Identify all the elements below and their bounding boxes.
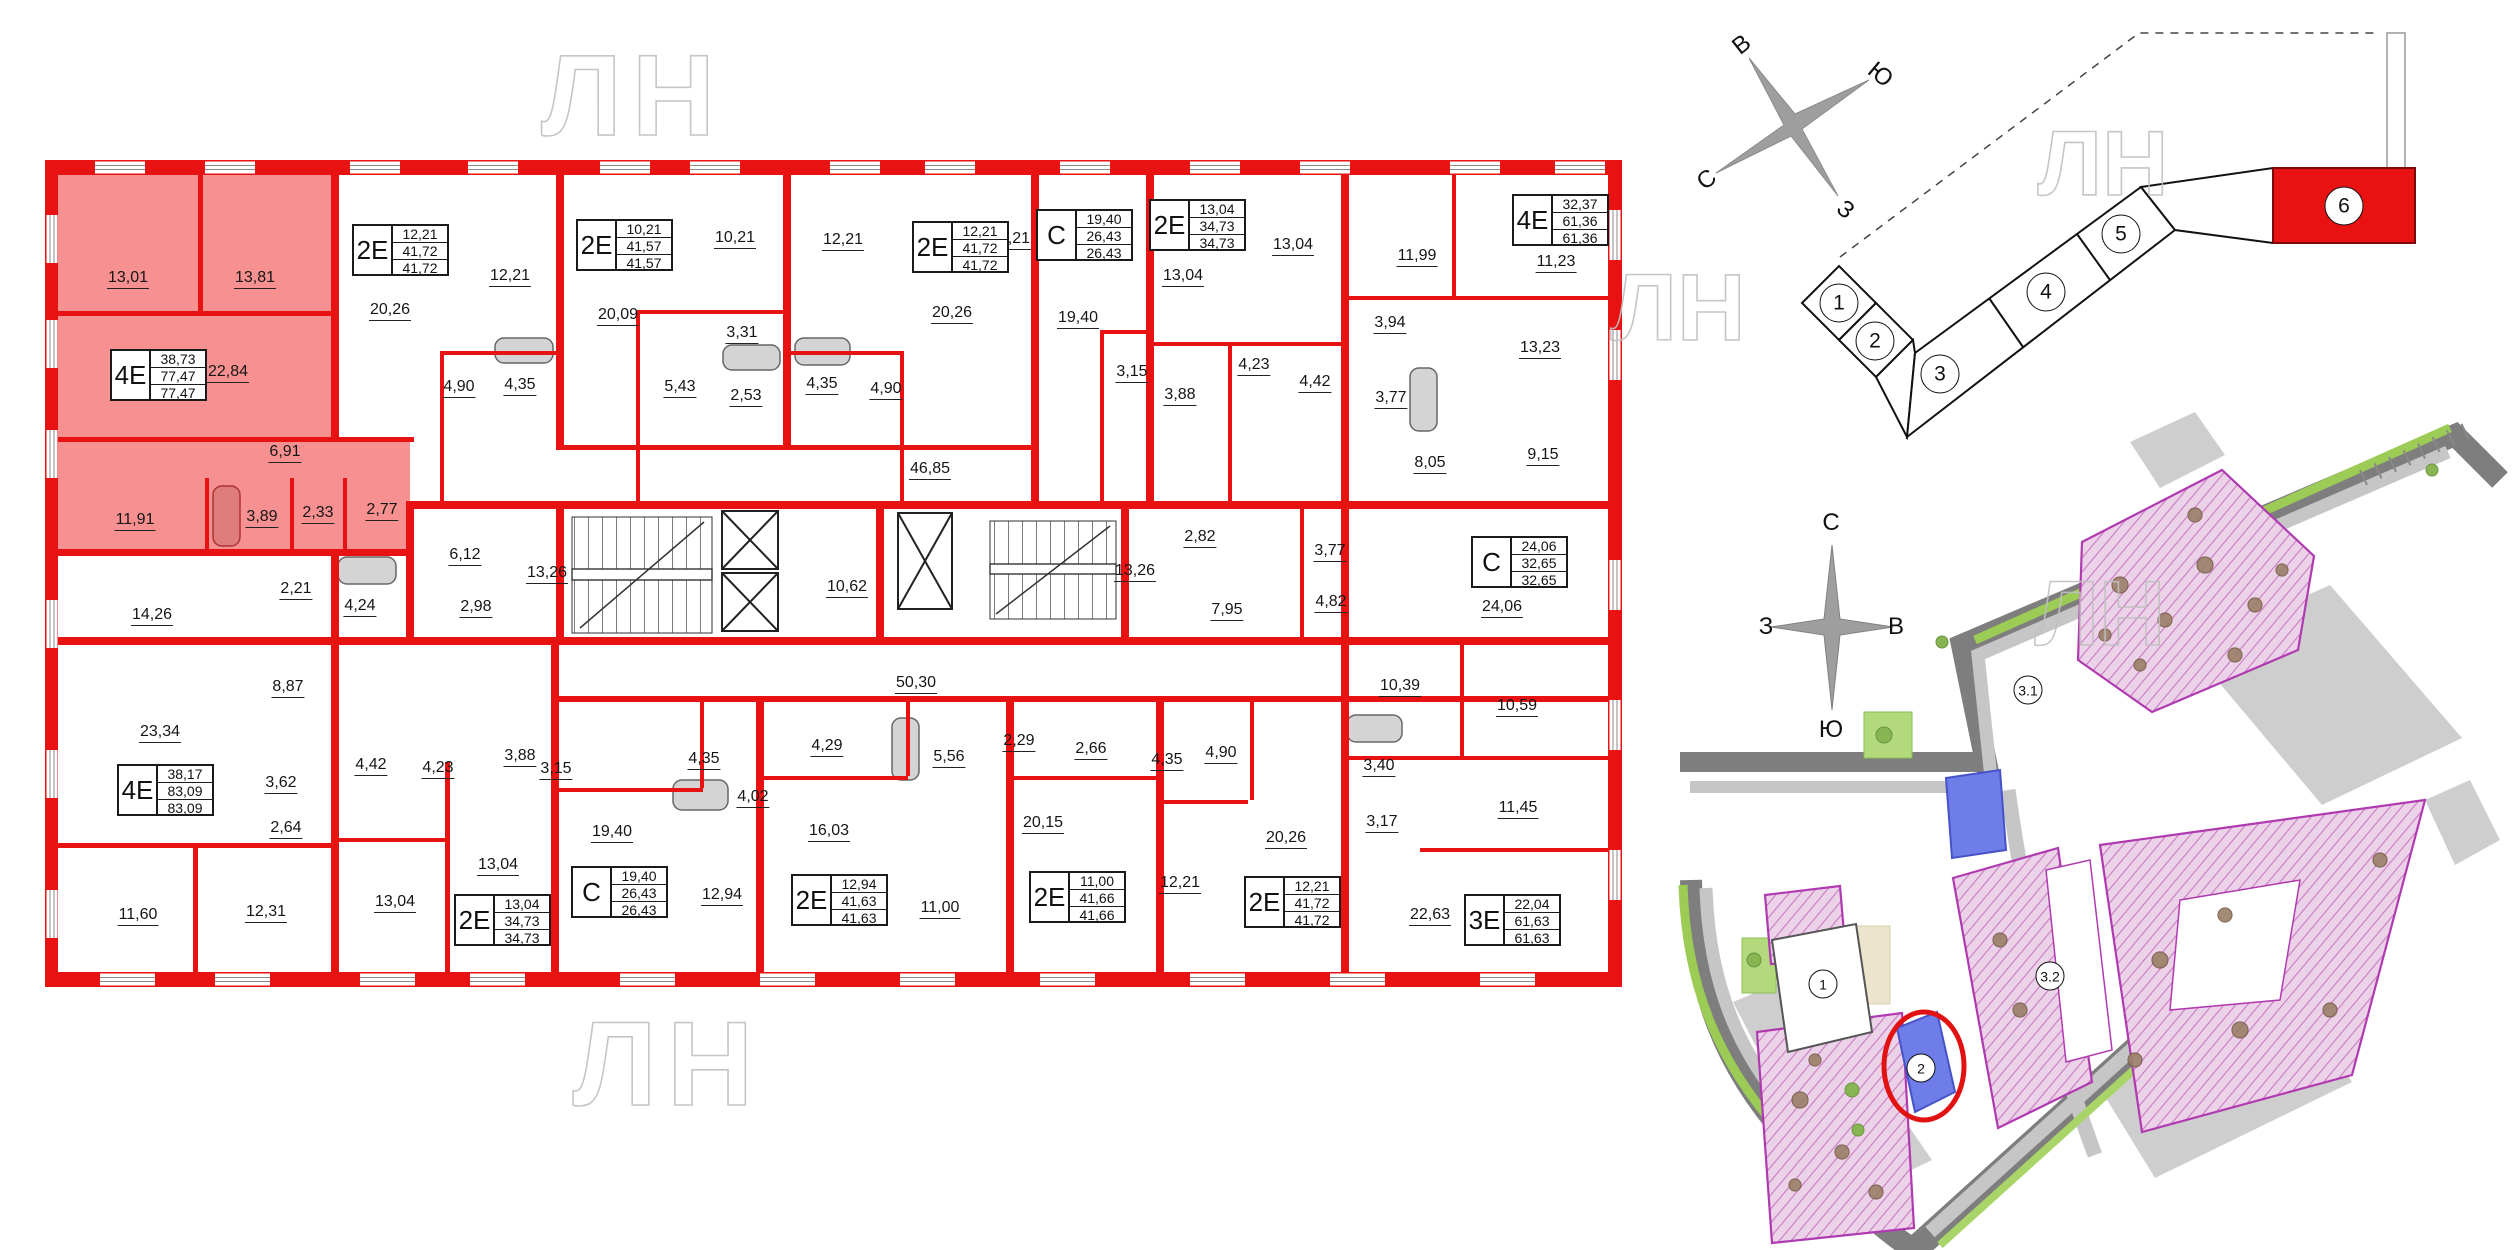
room-area-label: 13,01 (107, 270, 149, 286)
room-area-label: 20,26 (369, 302, 411, 318)
wall (45, 637, 1622, 645)
apartment-area-value: 38,73 (151, 351, 205, 368)
room-area-label: 4,35 (503, 377, 536, 393)
apartment-stat-box: С19,4026,4326,43 (1036, 209, 1133, 261)
apartment-area-value: 34,73 (1190, 235, 1244, 251)
room-area-label: 20,26 (931, 305, 973, 321)
room-area-label: 50,30 (895, 675, 937, 691)
apartment-area-value: 41,63 (832, 910, 886, 926)
apartment-area-value: 38,17 (158, 766, 212, 783)
floorplan-page: ЛН ЛН ЛН ЛН ЛН 13,0113,8122,846,9111,913… (0, 0, 2513, 1250)
compass-rose-key-plan (1716, 58, 1869, 196)
window (350, 162, 400, 174)
room-area-label: 8,05 (1413, 455, 1446, 471)
wall (1250, 696, 1254, 800)
apartment-area-value: 32,65 (1512, 555, 1566, 572)
apartment-area-value: 61,36 (1553, 213, 1607, 230)
window (1610, 560, 1621, 610)
courtyard-gap (2170, 880, 2300, 1010)
apartment-area-value: 11,00 (1070, 873, 1124, 890)
room-area-label: 6,12 (448, 547, 481, 563)
apartment-area-value: 22,04 (1505, 896, 1559, 913)
room-area-label: 4,90 (442, 379, 475, 395)
window (47, 215, 58, 263)
site-plan-building-number-3.2: 3.2 (2036, 962, 2065, 991)
room-area-label: 2,53 (729, 388, 762, 404)
room-area-label: 13,04 (374, 894, 416, 910)
room-area-label: 3,88 (1163, 387, 1196, 403)
room-area-label: 3,40 (1362, 758, 1395, 774)
wall (440, 351, 556, 355)
room-area-label: 2,64 (269, 820, 302, 836)
apartment-stat-box: 2Е12,2141,7241,72 (1244, 876, 1341, 928)
apartment-area-value: 19,40 (612, 868, 666, 885)
wall (52, 311, 331, 316)
wall (1156, 800, 1248, 804)
apartment-area-value: 41,63 (832, 893, 886, 910)
apartment-type-label: 2Е (914, 223, 953, 271)
apartment-stat-box: 4Е32,3761,3661,36 (1512, 194, 1609, 246)
room-area-label: 4,35 (1150, 752, 1183, 768)
room-area-label: 11,60 (118, 907, 159, 923)
wall (906, 696, 910, 776)
room-area-label: 5,56 (932, 749, 965, 765)
room-area-label: 11,91 (115, 512, 156, 528)
apartment-stat-box: 2Е12,2141,7241,72 (352, 224, 449, 276)
room-area-label: 4,02 (736, 789, 769, 805)
apartment-area-value: 41,72 (393, 243, 447, 260)
site-plan-building-number-3.1: 3.1 (2014, 676, 2043, 705)
key-plan-section-number-2: 2 (1856, 322, 1895, 361)
apartment-area-value: 24,06 (1512, 538, 1566, 555)
room-area-label: 2,66 (1074, 741, 1107, 757)
elevator-icon (722, 511, 952, 631)
wall (406, 501, 1622, 509)
window (1190, 974, 1245, 986)
window (1555, 162, 1605, 174)
room-area-label: 4,29 (810, 738, 843, 754)
room-area-label: 3,15 (1115, 364, 1148, 380)
apartment-area-value: 26,43 (1077, 245, 1131, 261)
apartment-area-value: 41,72 (393, 260, 447, 276)
window (925, 162, 975, 174)
apartment-stat-box: С19,4026,4326,43 (571, 866, 668, 918)
room-area-label: 2,77 (365, 502, 398, 518)
room-area-label: 19,40 (1057, 310, 1099, 326)
apartment-area-value: 41,66 (1070, 907, 1124, 923)
wall (700, 696, 704, 788)
window (1060, 162, 1110, 174)
wall (52, 437, 414, 442)
room-area-label: 20,26 (1265, 830, 1307, 846)
apartment-stat-box: 2Е12,9441,6341,63 (791, 874, 888, 926)
apartment-area-value: 13,04 (495, 896, 549, 913)
window (690, 162, 740, 174)
apartment-area-value: 34,73 (495, 913, 549, 930)
room-area-label: 13,04 (1162, 268, 1204, 284)
room-area-label: 10,59 (1496, 698, 1538, 714)
developer-logo-watermark: ЛН (1610, 255, 1745, 361)
developer-logo-watermark: ЛН (541, 32, 725, 160)
bathtub-icon (213, 486, 240, 546)
room-area-label: 2,82 (1183, 529, 1216, 545)
wall (1341, 160, 1349, 509)
room-area-label: 23,34 (139, 724, 181, 740)
room-area-label: 4,42 (354, 757, 387, 773)
room-area-label: 9,15 (1526, 447, 1559, 463)
apartment-type-label: 4Е (112, 351, 151, 399)
room-area-label: 3,31 (725, 325, 758, 341)
room-area-label: 13,04 (477, 857, 519, 873)
wall (756, 776, 908, 780)
window (47, 320, 58, 368)
wall (198, 167, 203, 316)
room-area-label: 24,06 (1481, 599, 1523, 615)
apartment-stat-box: С24,0632,6532,65 (1471, 536, 1568, 588)
window (1450, 162, 1500, 174)
apartment-area-value: 12,94 (832, 876, 886, 893)
room-area-label: 13,26 (526, 565, 568, 581)
apartment-stat-box: 4Е38,1783,0983,09 (117, 764, 214, 816)
wall (1228, 342, 1232, 509)
room-area-label: 11,00 (920, 900, 961, 916)
room-area-label: 4,35 (687, 751, 720, 767)
window (1610, 850, 1621, 900)
apartment-area-value: 13,04 (1190, 201, 1244, 218)
key-plan-section-number-1: 1 (1820, 284, 1859, 323)
wall (1300, 501, 1304, 641)
wall (783, 351, 904, 355)
apartment-type-label: 2Е (456, 896, 495, 944)
window (215, 974, 270, 986)
wall (205, 478, 209, 553)
window (1480, 974, 1535, 986)
wall (331, 838, 445, 842)
wall (45, 972, 1622, 987)
apartment-area-value: 10,21 (617, 221, 671, 238)
window (100, 974, 155, 986)
wall (783, 160, 791, 447)
wall (1420, 848, 1622, 852)
wall (440, 351, 444, 509)
wall (1100, 330, 1104, 509)
window (1610, 700, 1621, 750)
apartment-stat-box: 2Е13,0434,7334,73 (454, 894, 551, 946)
developer-logo-watermark: ЛН (573, 997, 764, 1131)
wall (556, 445, 1036, 450)
key-plan-outline-strip (2387, 33, 2405, 168)
apartment-type-label: 2Е (793, 876, 832, 924)
wall (45, 549, 414, 556)
wall (343, 478, 347, 553)
apartment-type-label: 4Е (119, 766, 158, 814)
apartment-area-value: 61,63 (1505, 930, 1559, 946)
room-area-label: 3,17 (1365, 814, 1398, 830)
wall (636, 310, 783, 314)
wall (1100, 330, 1146, 334)
apartment-type-label: С (573, 868, 612, 916)
room-area-label: 6,91 (268, 444, 301, 460)
wall (876, 501, 884, 641)
room-area-label: 4,90 (1204, 745, 1237, 761)
room-area-label: 4,42 (1298, 374, 1331, 390)
site-plan-building-number-1: 1 (1809, 970, 1838, 999)
window (1040, 974, 1095, 986)
wall (1452, 167, 1456, 296)
apartment-area-value: 83,09 (158, 783, 212, 800)
room-area-label: 3,77 (1374, 390, 1407, 406)
room-area-label: 4,24 (343, 598, 376, 614)
room-area-label: 13,26 (1114, 563, 1156, 579)
wall (331, 553, 339, 972)
room-area-label: 10,39 (1379, 678, 1421, 694)
apartment-area-value: 41,66 (1070, 890, 1124, 907)
room-area-label: 12,21 (822, 232, 864, 248)
apartment-area-value: 41,57 (617, 255, 671, 271)
wall (445, 762, 450, 972)
key-plan-section-number-3: 3 (1921, 355, 1960, 394)
wall (193, 843, 198, 972)
apartment-stat-box: 2Е10,2141,5741,57 (576, 219, 673, 271)
apartment-area-value: 12,21 (953, 223, 1007, 240)
window (1330, 974, 1385, 986)
apartment-area-value: 41,72 (1285, 895, 1339, 912)
apartment-area-value: 77,47 (151, 385, 205, 401)
room-area-label: 12,31 (245, 904, 287, 920)
wall (406, 501, 414, 641)
room-area-label: 2,98 (459, 599, 492, 615)
key-plan (1716, 33, 2415, 437)
compass-label-east: В (1888, 613, 1904, 641)
room-area-label: 19,40 (591, 824, 633, 840)
window (468, 162, 518, 174)
room-area-label: 2,21 (279, 581, 312, 597)
wall (756, 696, 764, 972)
wall (1146, 342, 1341, 346)
apartment-area-value: 41,72 (1285, 912, 1339, 928)
apartment-area-value: 34,73 (495, 930, 549, 946)
apartment-area-value: 83,09 (158, 800, 212, 816)
apartment-area-value: 26,43 (612, 885, 666, 902)
room-area-label: 20,09 (597, 307, 639, 323)
room-area-label: 7,95 (1210, 602, 1243, 618)
room-area-label: 4,23 (421, 760, 454, 776)
bathtub-icon (338, 338, 1437, 810)
room-area-label: 3,77 (1313, 543, 1346, 559)
apartment-type-label: 3Е (1466, 896, 1505, 944)
apartment-area-value: 32,37 (1553, 196, 1607, 213)
window (95, 162, 145, 174)
apartment-stat-box: 3Е22,0461,6361,63 (1464, 894, 1561, 946)
wall (900, 351, 904, 509)
wall (1341, 501, 1349, 972)
apartment-area-value: 19,40 (1077, 211, 1131, 228)
apartment-area-value: 26,43 (1077, 228, 1131, 245)
window (900, 974, 955, 986)
wall (331, 160, 339, 441)
window (1300, 162, 1350, 174)
room-area-label: 10,21 (714, 230, 756, 246)
window (47, 890, 58, 938)
apartment-type-label: 2Е (354, 226, 393, 274)
wall (551, 641, 559, 972)
room-area-label: 46,85 (909, 461, 951, 477)
apartment-area-value: 61,36 (1553, 230, 1607, 246)
developer-logo-watermark: ЛН (2038, 113, 2169, 215)
wall (636, 310, 640, 509)
room-area-label: 2,33 (301, 505, 334, 521)
room-area-label: 3,15 (539, 761, 572, 777)
apartment-type-label: С (1473, 538, 1512, 586)
room-area-label: 11,23 (1536, 254, 1577, 270)
apartment-area-value: 12,21 (1285, 878, 1339, 895)
apartment-type-label: 2Е (1246, 878, 1285, 926)
room-area-label: 5,43 (663, 379, 696, 395)
apartment-area-value: 77,47 (151, 368, 205, 385)
window (1610, 210, 1621, 260)
room-area-label: 11,99 (1397, 248, 1438, 264)
window (47, 750, 58, 798)
apartment-type-label: 2Е (1031, 873, 1070, 921)
plan-drawing: ЛН ЛН ЛН ЛН ЛН (0, 0, 2513, 1250)
site-plan-building-number-2: 2 (1907, 1054, 1936, 1083)
room-area-label: 3,62 (264, 775, 297, 791)
room-area-label: 3,89 (245, 509, 278, 525)
room-area-label: 4,35 (805, 376, 838, 392)
apartment-stat-box: 2Е11,0041,6641,66 (1029, 871, 1126, 923)
stair-core-2 (990, 521, 1116, 619)
wall (1460, 641, 1464, 760)
apartment-type-label: 2Е (578, 221, 617, 269)
wall (1156, 696, 1164, 972)
apartment-type-label: 2Е (1151, 201, 1190, 249)
wall (556, 160, 564, 447)
key-plan-section-number-5: 5 (2102, 215, 2141, 254)
wall (1006, 776, 1158, 780)
room-area-label: 20,15 (1022, 815, 1064, 831)
apartment-type-label: С (1038, 211, 1077, 259)
window (760, 974, 815, 986)
compass-label-west: З (1759, 613, 1774, 641)
room-area-label: 16,03 (808, 823, 850, 839)
apartment-area-value: 26,43 (612, 902, 666, 918)
room-area-label: 3,94 (1373, 315, 1406, 331)
room-area-label: 12,94 (701, 887, 743, 903)
apartment-area-value: 12,21 (393, 226, 447, 243)
developer-logo-watermark: ЛН (2035, 563, 2166, 665)
room-area-label: 8,87 (271, 679, 304, 695)
apartment-stat-box: 2Е13,0434,7334,73 (1149, 199, 1246, 251)
apartment-area-value: 41,72 (953, 257, 1007, 273)
apartment-stat-box: 4Е38,7377,4777,47 (110, 349, 207, 401)
wall (45, 843, 335, 848)
room-area-label: 12,21 (1159, 875, 1201, 891)
room-area-label: 4,23 (1237, 357, 1270, 373)
room-area-label: 3,88 (503, 748, 536, 764)
room-area-label: 4,90 (869, 381, 902, 397)
apartment-area-value: 34,73 (1190, 218, 1244, 235)
room-area-label: 13,04 (1272, 237, 1314, 253)
apartment-area-value: 61,63 (1505, 913, 1559, 930)
room-area-label: 12,21 (489, 268, 531, 284)
window (1190, 162, 1240, 174)
apartment-stat-box: 2Е12,2141,7241,72 (912, 221, 1009, 273)
compass-rose-site-plan (1771, 545, 1893, 710)
wall (290, 478, 294, 553)
apartment-type-label: 4Е (1514, 196, 1553, 244)
key-plan-section-number-6: 6 (2325, 187, 2364, 226)
apartment-area-value: 32,65 (1512, 572, 1566, 588)
room-area-label: 13,23 (1519, 340, 1561, 356)
site-plan (1680, 412, 2500, 1250)
room-area-label: 14,26 (131, 607, 173, 623)
room-area-label: 13,81 (234, 270, 276, 286)
window (600, 162, 650, 174)
window (470, 974, 525, 986)
window (620, 974, 675, 986)
room-area-label: 4,82 (1314, 594, 1347, 610)
wall (1341, 296, 1622, 300)
window (360, 974, 415, 986)
apartment-area-value: 41,72 (953, 240, 1007, 257)
room-area-label: 11,45 (1498, 800, 1539, 816)
room-area-label: 22,63 (1409, 907, 1451, 923)
apartment-area-value: 41,57 (617, 238, 671, 255)
room-area-label: 2,29 (1002, 733, 1035, 749)
stair-core-1 (572, 517, 712, 633)
window (205, 162, 255, 174)
wall (45, 160, 58, 987)
room-area-label: 22,84 (207, 364, 249, 380)
key-plan-section-number-4: 4 (2027, 273, 2066, 312)
window (830, 162, 880, 174)
compass-label-south: Ю (1819, 716, 1843, 744)
compass-label-north: С (1822, 509, 1839, 537)
window (47, 430, 58, 478)
window (47, 600, 58, 648)
room-area-label: 10,62 (826, 579, 868, 595)
wall (551, 788, 703, 792)
